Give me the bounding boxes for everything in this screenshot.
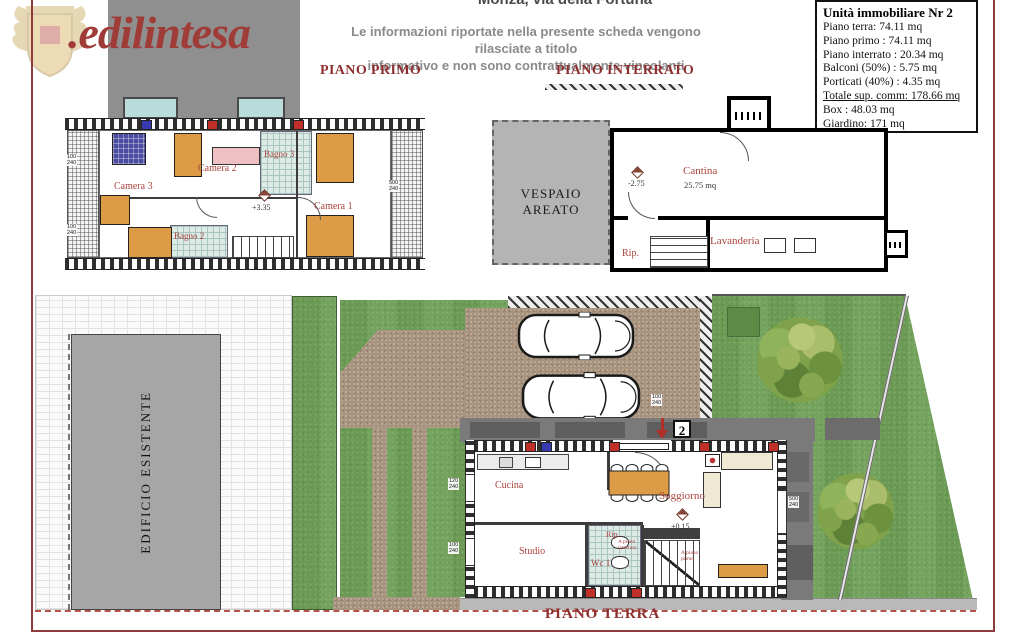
radiator-marker [207,120,218,130]
garden-path [412,428,427,597]
cabinet [128,227,172,258]
room-label-camera1: Camera 1 [314,201,353,212]
garden-path [333,597,460,610]
light-well [884,230,908,258]
desk [100,195,130,225]
info-box-title: Unità immobiliare Nr 2 [823,5,970,21]
boundary-wall [700,296,712,420]
skylight-window [123,97,178,119]
logo-text: .edilintesa [68,6,368,66]
piano-interrato-plan: Cantina 25.75 mq -2.75 Rip. Lavanderia [610,128,888,272]
room-label-lavanderia: Lavanderia [710,235,759,247]
sofa [721,452,773,470]
wall-partition [614,216,628,220]
heading-piano-interrato: PIANO INTERRATO [556,63,694,79]
window-dimension: 100 240 [66,224,77,236]
radiator-marker [699,442,710,452]
kitchen-counter [477,454,569,470]
radiator-marker [525,442,536,452]
balcony-right [391,130,423,258]
info-row: Piano primo : 74.11 mq [823,35,970,49]
neighbor-wall [545,84,683,90]
window-dimension: 100 240 [66,154,77,166]
info-row: Porticati (40%) : 4.35 mq [823,76,970,90]
garden-boundary [712,294,906,296]
wall [65,258,425,270]
window [465,474,475,502]
floor-interior: Camera 3 Camera 2 Bagno 3 Camera 1 Bagno… [99,130,391,258]
tree-icon [742,304,858,420]
info-row: Balconi (50%) : 5.75 mq [823,62,970,76]
car-icon [517,312,635,360]
roof-panel [470,422,540,438]
disclaimer-line-1: Le informazioni riportate nella presente… [330,23,722,57]
frame-left [31,0,33,632]
car-icon [521,372,641,422]
bed [306,215,354,257]
entry-arrow-icon [661,418,664,430]
light-well [727,96,771,132]
room-label-cucina: Cucina [495,480,523,491]
radiator-marker [293,120,304,130]
sofa [703,472,721,508]
room-label-studio: Studio [519,546,545,557]
bidet [611,556,629,569]
boundary-wall [508,296,712,308]
skylight-window [237,97,285,119]
bed [112,133,146,165]
radiator-marker [609,442,620,452]
radiator-marker [768,442,779,452]
grate-icon [889,242,903,248]
bathroom-tiles [260,131,312,195]
level-label: +0.15 [671,522,690,531]
balcony-left [67,130,99,258]
room-label-camera2: Camera 2 [198,163,237,174]
roof-panel [555,422,625,438]
entry-arrow-icon [656,430,668,439]
window [465,538,475,566]
piano-primo-plan: Camera 3 Camera 2 Bagno 3 Camera 1 Bagno… [65,118,425,270]
window-dimension: 100 240 [448,542,459,554]
level-marker-icon [631,166,644,179]
level-label: +3.35 [252,203,271,212]
wardrobe [316,133,354,183]
wall [465,440,475,598]
room-area-label: 25.75 mq [684,180,716,190]
lawn-strip [292,296,337,610]
info-row: Box : 48.03 mq [823,104,970,118]
door-swing-icon [720,132,749,161]
vent-marker [141,120,152,130]
heading-piano-primo: PIANO PRIMO [320,63,421,79]
frame-right [993,0,995,632]
sideboard [718,564,768,578]
room-label-camera3: Camera 3 [114,181,153,192]
info-row-total: Totale sup. comm: 178.66 mq [823,90,970,104]
radiator-marker [585,588,596,598]
room-label-rip: Rip. [606,530,620,539]
door-swing-icon [628,192,655,219]
wall [465,586,787,598]
room-label-bagno3: Bagno 3 [264,149,294,159]
existing-building-label: EDIFICIO ESISTENTE [138,391,154,554]
staircase [232,236,294,258]
staircase [650,236,708,268]
patio-slab [785,452,809,482]
staircase [644,540,700,586]
unit-number-badge: 2 [673,420,691,438]
window-dimension: 120 240 [448,478,459,490]
stove [499,457,513,468]
room-label-bagno2: Bagno 2 [174,231,204,241]
vespaio-label: VESPAIO AREATO [494,122,608,218]
boundary-dashed [68,334,70,610]
window [777,490,787,534]
grate-icon [735,112,763,120]
level-marker-icon [676,508,689,521]
window-dimension: 500 240 [788,496,799,508]
wall-partition [658,216,884,220]
vent-marker [541,442,552,452]
washing-machine [794,238,816,253]
room-label-rip: Rip. [622,248,639,259]
portico-roof [460,418,815,442]
fireplace [705,454,720,467]
washing-machine [764,238,786,253]
radiator-marker [631,588,642,598]
floor-plan-sheet: .edilintesa Monza, via della Fortuna Le … [0,0,1024,641]
info-row: Piano terra: 74.11 mq [823,21,970,35]
road-strip [460,598,977,610]
door-swing-icon [196,197,217,218]
entrance-door [615,443,669,450]
entry-dimension: 100 240 [651,394,662,406]
info-row: Piano interrato : 20.34 mq [823,49,970,63]
room-label-cantina: Cantina [683,165,717,177]
wall-partition [296,131,298,258]
property-line-dashed [35,610,976,612]
stair-note-down: A piano interrato [618,539,637,551]
existing-building: EDIFICIO ESISTENTE [71,334,221,610]
vespaio-area: VESPAIO AREATO [492,120,610,265]
room-label-wc: Wc 1 [591,558,610,568]
roof-panel [825,418,880,440]
window-dimension: 500 240 [388,180,399,192]
piano-terra-plan: EDIFICIO ESISTENTE [35,290,975,631]
kitchen-sink [525,457,541,468]
stair-note-up: A piano primo [681,550,698,562]
house-ground-floor: Cucina Soggiorno +0.15 Studio Wc 1 Rip. … [465,440,787,598]
garden-path [372,428,387,597]
level-label: -2.75 [628,179,645,188]
room-label-soggiorno: Soggiorno [659,490,705,502]
location-title: Monza, via della Fortuna [420,0,710,9]
wall [65,118,425,130]
unit-info-box: Unità immobiliare Nr 2 Piano terra: 74.1… [815,0,978,133]
bathroom-tiles [170,225,228,258]
heading-piano-terra: PIANO TERRA [545,606,660,623]
